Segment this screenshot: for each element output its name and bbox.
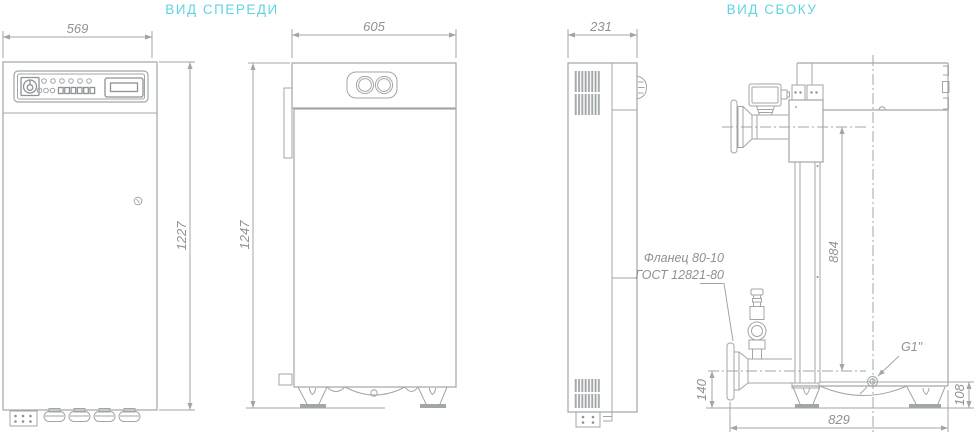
technical-drawing-page: ВИД СПЕРЕДИ ВИД СБОКУ	[0, 0, 980, 439]
dimension-cabinet-height: 1227	[159, 62, 195, 410]
pump-block	[789, 63, 823, 162]
vent-grille-top	[574, 71, 600, 115]
cabinet-side-outline	[568, 63, 637, 412]
boiler-drawing: ВИД СПЕРЕДИ ВИД СБОКУ	[0, 0, 980, 439]
side-bracket-top	[284, 88, 292, 158]
svg-text:829: 829	[828, 412, 850, 427]
side-view-title: ВИД СБОКУ	[727, 2, 818, 17]
dimension-cabinet-width: 569	[3, 21, 152, 58]
control-panel	[14, 71, 148, 102]
svg-text:569: 569	[67, 21, 89, 36]
panel-buttons	[59, 88, 95, 94]
svg-text:108: 108	[952, 383, 967, 405]
svg-text:884: 884	[826, 241, 841, 263]
flange-label-line2: ГОСТ 12821-80	[635, 268, 724, 282]
terminal-block-side	[576, 412, 612, 427]
side-view-legs	[793, 386, 945, 408]
door-handle-side	[637, 76, 647, 99]
boiler-body	[294, 109, 456, 387]
power-knob-icon	[21, 78, 39, 96]
cabinet-outline	[3, 62, 157, 410]
svg-text:1247: 1247	[237, 220, 252, 250]
cabinet-side-view: 231	[568, 19, 647, 427]
pipe-column	[792, 162, 820, 388]
sensor-device	[749, 84, 790, 115]
control-cabinet-front-view: 569 1227	[3, 21, 195, 426]
dimension-cabinet-depth: 231	[568, 19, 637, 58]
svg-text:605: 605	[363, 19, 385, 34]
dimension-g1-height: 108	[952, 382, 969, 408]
boiler-legs	[298, 387, 447, 408]
terminal-block	[10, 411, 37, 426]
svg-text:231: 231	[589, 19, 612, 34]
dimension-overall-depth: 829	[730, 390, 948, 432]
dimension-boiler-height: 1247	[237, 63, 385, 408]
flue-connections	[347, 72, 397, 98]
side-bracket-bottom	[279, 374, 292, 385]
boiler-side-view: G1" Фланец 80-10 ГОСТ 12821-80 884 140 1…	[635, 55, 974, 433]
flange-callout: Фланец 80-10 ГОСТ 12821-80	[635, 251, 733, 341]
keyhole-icon	[134, 197, 142, 205]
safety-valve	[748, 289, 766, 359]
g1-label: G1"	[901, 340, 923, 354]
dimension-supply-height: 884	[826, 127, 842, 371]
boiler-front-view: 605 1247	[237, 19, 456, 408]
supply-pipe	[722, 100, 866, 153]
front-view-title: ВИД СПЕРЕДИ	[165, 2, 278, 17]
svg-text:1227: 1227	[174, 221, 189, 251]
svg-text:140: 140	[694, 378, 709, 400]
flange-label-line1: Фланец 80-10	[644, 251, 724, 265]
dimension-return-height: 140	[694, 371, 712, 408]
vent-grille-bottom	[574, 379, 600, 408]
panel-display	[105, 78, 143, 97]
dimension-boiler-width: 605	[292, 19, 456, 58]
